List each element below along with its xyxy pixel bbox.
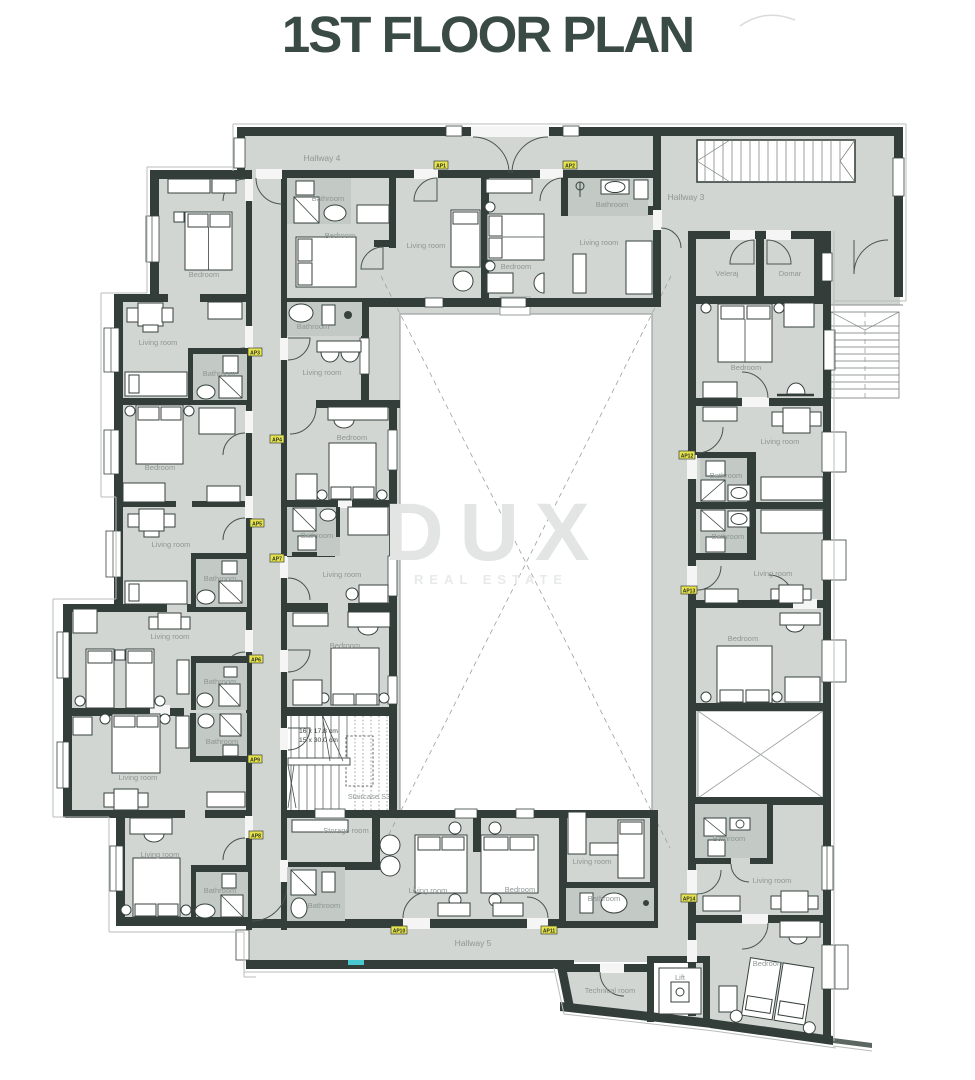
svg-text:AP12: AP12 bbox=[681, 454, 694, 460]
svg-text:Hallway 5: Hallway 5 bbox=[455, 938, 492, 948]
svg-text:AP6: AP6 bbox=[251, 658, 261, 664]
svg-text:Living room: Living room bbox=[754, 569, 793, 578]
svg-text:Living room: Living room bbox=[580, 238, 619, 247]
svg-text:REAL ESTATE: REAL ESTATE bbox=[414, 572, 568, 587]
svg-text:AP2: AP2 bbox=[565, 164, 575, 170]
svg-text:Bathroom: Bathroom bbox=[204, 574, 237, 583]
svg-text:Living room: Living room bbox=[152, 540, 191, 549]
svg-text:Lift: Lift bbox=[675, 973, 686, 982]
svg-text:Bathroom: Bathroom bbox=[588, 894, 621, 903]
svg-text:Bedroom: Bedroom bbox=[728, 634, 758, 643]
svg-text:Bedroom: Bedroom bbox=[501, 262, 531, 271]
svg-text:Living room: Living room bbox=[139, 338, 178, 347]
svg-text:Living room: Living room bbox=[119, 773, 158, 782]
svg-text:Bathroom: Bathroom bbox=[712, 532, 745, 541]
svg-text:Bathroom: Bathroom bbox=[301, 531, 334, 540]
svg-text:AP11: AP11 bbox=[543, 929, 555, 935]
svg-text:Living room: Living room bbox=[409, 886, 448, 895]
svg-text:AP5: AP5 bbox=[252, 522, 262, 528]
svg-text:Hallway 4: Hallway 4 bbox=[304, 153, 341, 163]
svg-text:Veleraj: Veleraj bbox=[716, 269, 739, 278]
svg-text:Living room: Living room bbox=[151, 632, 190, 641]
svg-text:Staircase S3: Staircase S3 bbox=[348, 792, 391, 801]
svg-text:AP9: AP9 bbox=[250, 758, 260, 764]
svg-text:Hallway 3: Hallway 3 bbox=[668, 192, 705, 202]
svg-text:Bathroom: Bathroom bbox=[206, 737, 239, 746]
svg-text:Living room: Living room bbox=[141, 850, 180, 859]
svg-text:Living room: Living room bbox=[573, 857, 612, 866]
svg-text:Living room: Living room bbox=[303, 368, 342, 377]
svg-text:Bathroom: Bathroom bbox=[297, 322, 330, 331]
svg-text:Bathroom: Bathroom bbox=[203, 369, 236, 378]
svg-text:AP7: AP7 bbox=[272, 557, 282, 563]
svg-text:15 x 30.0 cm: 15 x 30.0 cm bbox=[299, 737, 338, 744]
svg-text:Bathroom: Bathroom bbox=[312, 194, 345, 203]
svg-text:Bathroom: Bathroom bbox=[204, 677, 237, 686]
svg-text:Bedroom: Bedroom bbox=[337, 433, 367, 442]
svg-text:AP13: AP13 bbox=[683, 589, 696, 595]
svg-text:DUX: DUX bbox=[384, 487, 605, 578]
svg-text:AP1: AP1 bbox=[436, 164, 446, 170]
svg-text:Bedroom: Bedroom bbox=[145, 463, 175, 472]
svg-text:Technical room: Technical room bbox=[585, 986, 635, 995]
svg-text:AP10: AP10 bbox=[393, 929, 406, 935]
svg-text:Living room: Living room bbox=[753, 876, 792, 885]
svg-text:AP4: AP4 bbox=[272, 438, 282, 444]
svg-text:Living room: Living room bbox=[407, 241, 446, 250]
svg-text:Domar: Domar bbox=[779, 269, 802, 278]
svg-text:Bedroom: Bedroom bbox=[505, 885, 535, 894]
svg-text:AP3: AP3 bbox=[250, 351, 260, 357]
svg-text:Bedroom: Bedroom bbox=[753, 959, 783, 968]
svg-text:Bedroom: Bedroom bbox=[731, 363, 761, 372]
svg-text:Bedroom: Bedroom bbox=[189, 270, 219, 279]
svg-text:Bathroom: Bathroom bbox=[308, 901, 341, 910]
svg-text:Bedroom: Bedroom bbox=[330, 641, 360, 650]
svg-text:Living room: Living room bbox=[323, 570, 362, 579]
svg-text:AP8: AP8 bbox=[251, 834, 261, 840]
svg-text:Bedroom: Bedroom bbox=[325, 231, 355, 240]
svg-text:Bathroom: Bathroom bbox=[710, 471, 743, 480]
svg-text:AP14: AP14 bbox=[683, 897, 696, 903]
svg-text:Bathroom: Bathroom bbox=[713, 834, 746, 843]
svg-text:Living room: Living room bbox=[761, 437, 800, 446]
svg-text:Storage room: Storage room bbox=[323, 826, 368, 835]
svg-text:Bathroom: Bathroom bbox=[204, 886, 237, 895]
svg-text:16 x 17.8 cm: 16 x 17.8 cm bbox=[299, 728, 338, 735]
svg-text:Bathroom: Bathroom bbox=[596, 200, 629, 209]
